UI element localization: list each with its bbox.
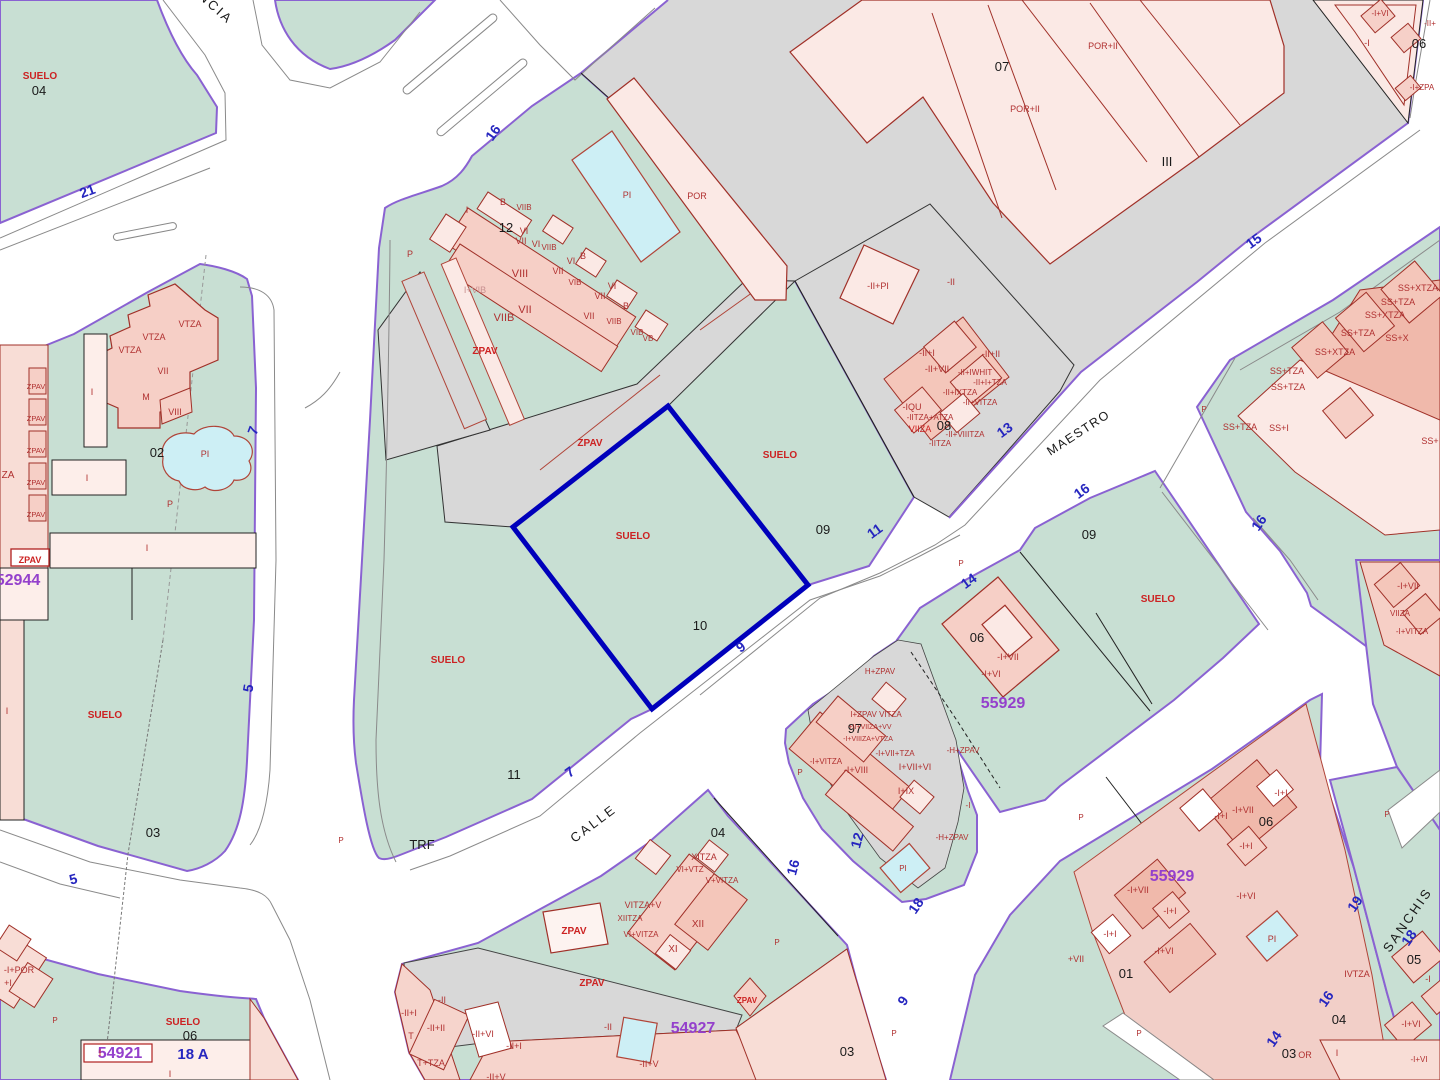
svg-text:PI: PI bbox=[899, 864, 907, 873]
svg-text:11: 11 bbox=[507, 767, 521, 782]
svg-text:-II+PI: -II+PI bbox=[867, 281, 889, 291]
svg-text:VIB: VIB bbox=[631, 328, 644, 337]
svg-text:-I+VII: -I+VII bbox=[997, 652, 1019, 662]
svg-text:05: 05 bbox=[1407, 952, 1421, 967]
svg-text:-I+VI: -I+VI bbox=[1154, 946, 1173, 956]
svg-text:VI: VI bbox=[532, 239, 541, 249]
svg-text:+VII: +VII bbox=[1068, 954, 1084, 964]
svg-text:ZPAV: ZPAV bbox=[561, 926, 587, 937]
svg-text:P: P bbox=[1201, 405, 1206, 414]
svg-text:-II+IXTZA: -II+IXTZA bbox=[943, 388, 978, 397]
svg-text:I: I bbox=[146, 543, 149, 553]
svg-text:-I+VII: -I+VII bbox=[1127, 885, 1149, 895]
svg-text:-II+: -II+ bbox=[1424, 19, 1436, 28]
svg-text:06: 06 bbox=[183, 1028, 197, 1043]
svg-text:XITZA: XITZA bbox=[691, 852, 717, 862]
svg-text:04: 04 bbox=[1332, 1012, 1346, 1027]
svg-text:PI: PI bbox=[201, 449, 210, 459]
svg-text:-H+ZPAV: -H+ZPAV bbox=[936, 833, 969, 842]
svg-text:-I+VI: -I+VI bbox=[1236, 891, 1255, 901]
svg-text:-I+VII: -I+VII bbox=[1232, 805, 1254, 815]
svg-text:52944: 52944 bbox=[0, 572, 40, 589]
svg-text:V+VITZA: V+VITZA bbox=[706, 876, 739, 885]
svg-text:-I+VIIIZA+VTZA: -I+VIIIZA+VTZA bbox=[843, 736, 893, 743]
svg-text:-IITZA: -IITZA bbox=[929, 439, 952, 448]
svg-text:I: I bbox=[6, 706, 9, 716]
svg-text:-II+V: -II+V bbox=[639, 1059, 658, 1069]
svg-text:SS+TZA: SS+TZA bbox=[1223, 422, 1257, 432]
svg-text:ZPAV: ZPAV bbox=[27, 478, 45, 487]
svg-text:-II+VII: -II+VII bbox=[925, 364, 949, 374]
svg-text:P: P bbox=[774, 938, 779, 947]
svg-text:SS+XTZA: SS+XTZA bbox=[1398, 283, 1438, 293]
svg-text:POR: POR bbox=[687, 191, 707, 201]
svg-text:I+VII+VI: I+VII+VI bbox=[899, 762, 932, 772]
svg-text:-IQU: -IQU bbox=[903, 402, 922, 412]
svg-text:04: 04 bbox=[32, 83, 46, 98]
svg-text:-I+VI: -I+VI bbox=[1401, 1019, 1420, 1029]
svg-text:-II+II: -II+II bbox=[982, 349, 1000, 359]
svg-text:I+IX: I+IX bbox=[898, 786, 914, 796]
svg-text:SS+TZA: SS+TZA bbox=[1381, 297, 1415, 307]
svg-text:-II+VIIITZA: -II+VIIITZA bbox=[946, 430, 986, 439]
svg-text:54927: 54927 bbox=[671, 1020, 716, 1037]
svg-text:VTZA: VTZA bbox=[118, 345, 141, 355]
svg-text:SS+I: SS+I bbox=[1269, 423, 1289, 433]
svg-text:VIIB: VIIB bbox=[494, 312, 515, 324]
svg-text:-II: -II bbox=[604, 1022, 612, 1032]
svg-text:XII: XII bbox=[692, 919, 704, 930]
svg-text:-H+ZPAV: -H+ZPAV bbox=[947, 746, 980, 755]
svg-text:-I+I: -I+I bbox=[1274, 788, 1287, 798]
svg-text:I+VIB: I+VIB bbox=[464, 285, 486, 295]
svg-text:SS+X: SS+X bbox=[1385, 333, 1408, 343]
svg-text:-I+VITZA: -I+VITZA bbox=[1396, 627, 1429, 636]
svg-text:-II+II: -II+II bbox=[427, 1023, 445, 1033]
svg-text:ZPAV: ZPAV bbox=[19, 555, 42, 565]
svg-text:-I+VI: -I+VI bbox=[981, 669, 1000, 679]
svg-text:55929: 55929 bbox=[1150, 868, 1195, 885]
svg-text:ZPAV: ZPAV bbox=[27, 510, 45, 519]
svg-text:I+ZPAV VITZA: I+ZPAV VITZA bbox=[850, 710, 902, 719]
svg-text:VIB: VIB bbox=[569, 278, 582, 287]
svg-text:I: I bbox=[99, 1048, 102, 1058]
svg-text:I: I bbox=[169, 1069, 172, 1079]
svg-text:VIII: VIII bbox=[512, 268, 529, 280]
svg-text:09: 09 bbox=[816, 522, 830, 537]
svg-text:-I+VI: -I+VI bbox=[1371, 9, 1388, 18]
svg-text:-I: -I bbox=[966, 801, 971, 810]
svg-text:POR+II: POR+II bbox=[1088, 41, 1118, 51]
svg-text:-I+I: -I+I bbox=[1239, 841, 1252, 851]
svg-text:06: 06 bbox=[970, 630, 984, 645]
svg-text:PI: PI bbox=[623, 190, 632, 200]
svg-text:B: B bbox=[623, 301, 629, 311]
svg-text:TRF: TRF bbox=[409, 837, 434, 852]
svg-text:VI: VI bbox=[567, 256, 576, 266]
svg-text:VIIZA: VIIZA bbox=[909, 424, 932, 434]
svg-text:-II+VITZA: -II+VITZA bbox=[963, 398, 998, 407]
svg-text:SUELO: SUELO bbox=[23, 71, 58, 82]
svg-text:I: I bbox=[1336, 1048, 1339, 1058]
svg-text:03: 03 bbox=[146, 825, 160, 840]
svg-text:VIIZA: VIIZA bbox=[1390, 609, 1411, 618]
svg-text:I: I bbox=[466, 205, 469, 215]
svg-text:-I+VITZA: -I+VITZA bbox=[810, 757, 843, 766]
svg-text:55929: 55929 bbox=[981, 695, 1026, 712]
svg-text:P: P bbox=[1384, 810, 1389, 819]
svg-text:VTZA: VTZA bbox=[178, 319, 201, 329]
svg-text:SS+: SS+ bbox=[1421, 436, 1438, 446]
svg-text:SUELO: SUELO bbox=[1141, 594, 1176, 605]
svg-text:VI: VI bbox=[608, 281, 617, 291]
svg-text:VB: VB bbox=[643, 334, 654, 343]
svg-text:ZPAV: ZPAV bbox=[27, 446, 45, 455]
svg-text:ZPAV: ZPAV bbox=[577, 438, 603, 449]
svg-text:ZPAV: ZPAV bbox=[737, 996, 758, 1005]
svg-text:-I+I: -I+I bbox=[1163, 906, 1176, 916]
svg-text:M: M bbox=[142, 392, 150, 402]
svg-text:VIII: VIII bbox=[168, 407, 182, 417]
svg-text:-I: -I bbox=[1364, 38, 1370, 48]
svg-text:-I: -I bbox=[1425, 974, 1431, 984]
svg-text:I: I bbox=[91, 387, 94, 397]
svg-text:VII: VII bbox=[594, 291, 605, 301]
svg-text:VITZA+V: VITZA+V bbox=[625, 900, 662, 910]
svg-text:SUELO: SUELO bbox=[88, 710, 123, 721]
svg-text:P: P bbox=[797, 768, 802, 777]
svg-text:09: 09 bbox=[1082, 527, 1096, 542]
svg-text:01: 01 bbox=[1119, 966, 1133, 981]
svg-text:SS+XTZA: SS+XTZA bbox=[1365, 310, 1405, 320]
svg-text:+I: +I bbox=[4, 978, 12, 988]
svg-text:VI: VI bbox=[520, 226, 529, 236]
svg-text:07: 07 bbox=[995, 59, 1009, 74]
svg-text:VII: VII bbox=[515, 236, 526, 246]
svg-text:P: P bbox=[52, 1016, 57, 1025]
svg-text:B: B bbox=[580, 251, 586, 261]
svg-text:12: 12 bbox=[499, 220, 513, 235]
svg-text:ZPAV: ZPAV bbox=[27, 414, 45, 423]
svg-text:P: P bbox=[1136, 1029, 1141, 1038]
svg-text:XI: XI bbox=[668, 944, 677, 955]
svg-text:SS+XTZA: SS+XTZA bbox=[1315, 347, 1355, 357]
svg-text:-I+VIII: -I+VIII bbox=[844, 765, 868, 775]
svg-text:P: P bbox=[167, 499, 173, 509]
svg-text:-I+ZPA: -I+ZPA bbox=[1410, 83, 1435, 92]
svg-text:VII: VII bbox=[552, 266, 563, 276]
svg-text:SUELO: SUELO bbox=[763, 450, 798, 461]
svg-text:-II+I: -II+I bbox=[919, 348, 935, 358]
svg-text:P: P bbox=[338, 836, 343, 845]
svg-text:ZPAV: ZPAV bbox=[27, 382, 45, 391]
svg-text:VI+VITZA: VI+VITZA bbox=[624, 930, 660, 939]
svg-text:02: 02 bbox=[150, 445, 164, 460]
svg-text:VIIB: VIIB bbox=[541, 243, 556, 252]
svg-text:T+TZA: T+TZA bbox=[417, 1058, 445, 1068]
svg-text:H+ZPAV: H+ZPAV bbox=[865, 667, 896, 676]
svg-text:III: III bbox=[1162, 154, 1173, 169]
svg-text:03: 03 bbox=[840, 1044, 854, 1059]
svg-text:P: P bbox=[407, 249, 413, 259]
svg-text:-II+IWHIT: -II+IWHIT bbox=[958, 368, 993, 377]
svg-text:SUELO: SUELO bbox=[431, 655, 466, 666]
svg-text:SS+TZA: SS+TZA bbox=[1270, 366, 1304, 376]
svg-text:IVTZA: IVTZA bbox=[1344, 969, 1370, 979]
svg-text:P: P bbox=[958, 559, 963, 568]
svg-text:VII: VII bbox=[157, 366, 168, 376]
svg-text:-I+I: -I+I bbox=[1214, 811, 1227, 821]
svg-text:-II: -II bbox=[438, 995, 446, 1005]
svg-text:-II+I: -II+I bbox=[506, 1041, 522, 1051]
svg-text:04: 04 bbox=[711, 825, 725, 840]
svg-text:POR+II: POR+II bbox=[1010, 104, 1040, 114]
svg-text:SUELO: SUELO bbox=[616, 531, 651, 542]
svg-text:ZPAV: ZPAV bbox=[472, 346, 498, 357]
svg-text:54921: 54921 bbox=[98, 1045, 143, 1062]
svg-text:+II+VIIZA+VV: +II+VIIZA+VV bbox=[849, 724, 892, 731]
svg-text:VIIB: VIIB bbox=[606, 317, 621, 326]
svg-text:ZPAV: ZPAV bbox=[579, 978, 605, 989]
svg-text:P: P bbox=[891, 1029, 896, 1038]
svg-text:VII: VII bbox=[518, 304, 531, 316]
svg-text:I: I bbox=[86, 473, 89, 483]
svg-text:-II+V: -II+V bbox=[486, 1072, 505, 1080]
svg-text:VIIB: VIIB bbox=[516, 203, 531, 212]
svg-text:-II+I: -II+I bbox=[401, 1008, 417, 1018]
svg-text:OR: OR bbox=[1298, 1050, 1312, 1060]
svg-text:10: 10 bbox=[693, 618, 707, 633]
svg-text:XIITZA: XIITZA bbox=[618, 914, 644, 923]
svg-text:VTZA: VTZA bbox=[142, 332, 165, 342]
svg-text:VI+VTZ: VI+VTZ bbox=[676, 865, 703, 874]
svg-text:-I+POR: -I+POR bbox=[4, 965, 35, 975]
svg-text:SUELO: SUELO bbox=[166, 1017, 201, 1028]
svg-text:-II+VI: -II+VI bbox=[472, 1029, 494, 1039]
svg-text:B: B bbox=[500, 197, 506, 207]
svg-text:03: 03 bbox=[1282, 1046, 1296, 1061]
svg-text:-II+I+TZA: -II+I+TZA bbox=[973, 378, 1007, 387]
svg-text:-I+VII+TZA: -I+VII+TZA bbox=[875, 749, 915, 758]
svg-text:-I+VII: -I+VII bbox=[1397, 581, 1419, 591]
svg-text:-IITZA+ATZA: -IITZA+ATZA bbox=[907, 413, 954, 422]
svg-text:ZA: ZA bbox=[2, 470, 15, 481]
svg-text:VII: VII bbox=[583, 311, 594, 321]
svg-text:-II: -II bbox=[947, 277, 955, 287]
svg-text:-I+I: -I+I bbox=[1103, 929, 1116, 939]
svg-text:18 A: 18 A bbox=[177, 1046, 208, 1063]
svg-text:06: 06 bbox=[1412, 36, 1426, 51]
svg-text:-I+VI: -I+VI bbox=[1410, 1055, 1427, 1064]
svg-text:06: 06 bbox=[1259, 814, 1273, 829]
svg-text:T: T bbox=[408, 1031, 414, 1041]
svg-text:P: P bbox=[1078, 813, 1083, 822]
svg-text:PI: PI bbox=[1268, 934, 1277, 944]
svg-text:SS+TZA: SS+TZA bbox=[1271, 382, 1305, 392]
svg-text:SS+TZA: SS+TZA bbox=[1341, 328, 1375, 338]
